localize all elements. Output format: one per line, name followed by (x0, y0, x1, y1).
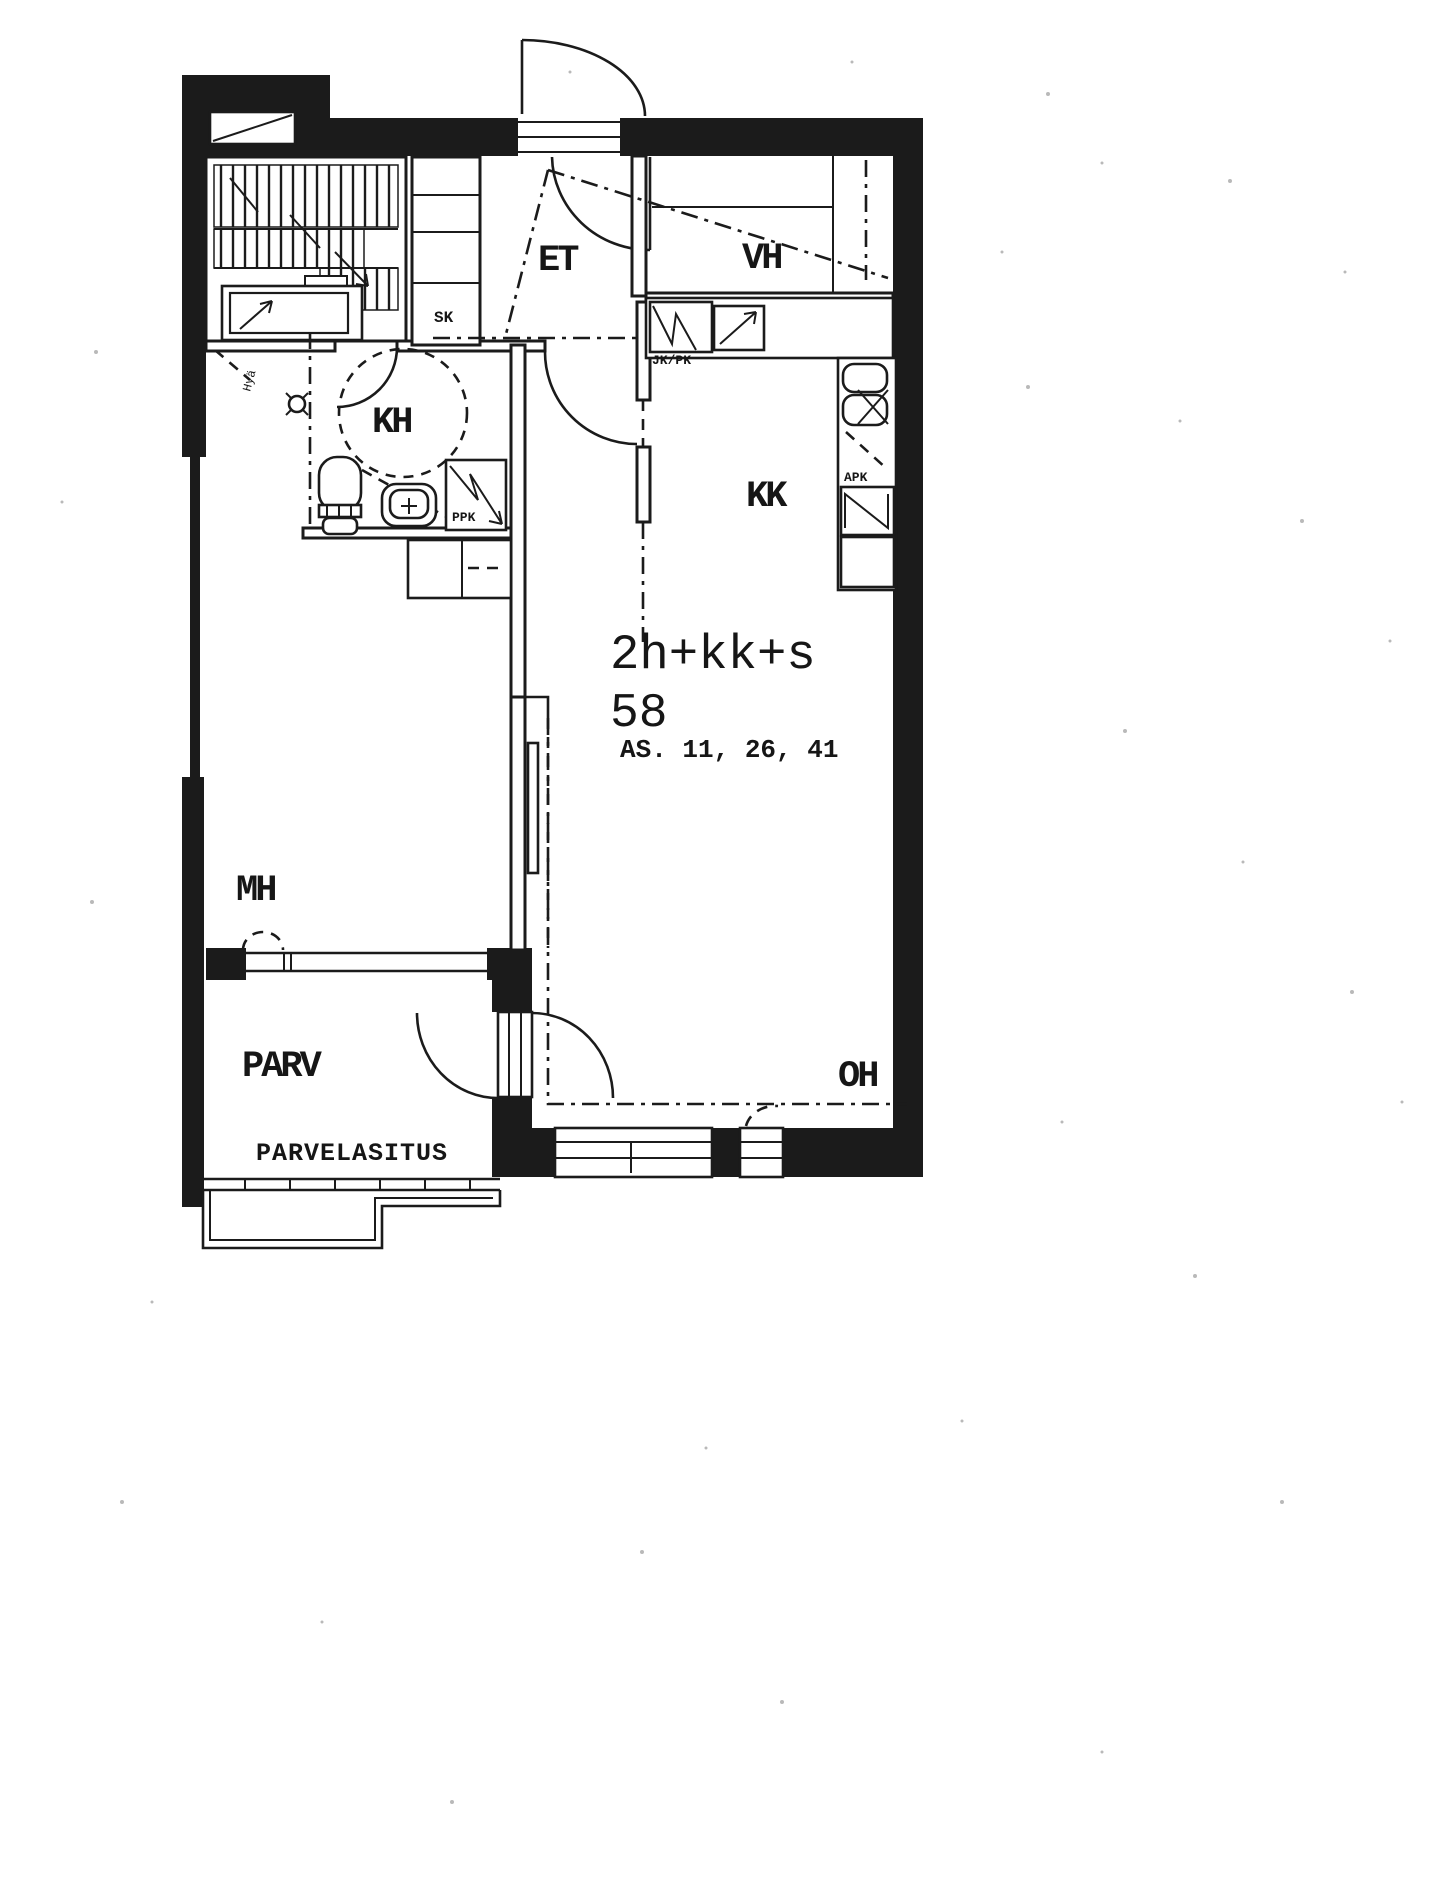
window-vent-swing (746, 1106, 778, 1126)
mh-window (246, 953, 487, 971)
apartment-numbers-label: AS. 11, 26, 41 (620, 735, 838, 765)
mh-window-swing (243, 932, 283, 950)
balcony-glazing (203, 1179, 500, 1190)
oh-window-2 (740, 1106, 783, 1177)
washbasin (382, 484, 436, 526)
labels: ET VH KH KK MH OH PARV 2h+kk+s 58 AS. 11… (236, 238, 877, 1168)
sliding-door-panel[interactable] (528, 743, 538, 873)
wall-left-middle (190, 457, 200, 777)
wall-mh-parv-left (206, 948, 246, 980)
wall-right (893, 118, 923, 1177)
room-label-kh: KH (372, 402, 411, 444)
wall-balcony-pillar (492, 950, 532, 1012)
elevator-shaft-symbol (222, 286, 362, 340)
wall-kk-left-lower (637, 447, 650, 522)
room-label-oh: OH (838, 1056, 877, 1098)
kitchen-cabinet (841, 537, 894, 587)
wall-et-vh (632, 156, 646, 296)
scanned-floor-plan-page: ET VH KH KK MH OH PARV 2h+kk+s 58 AS. 11… (0, 0, 1440, 1877)
wall-mh-oh (511, 697, 525, 950)
wall-below-balcony-door (492, 1097, 532, 1132)
washer-label: PPK (452, 510, 476, 525)
wall-oh-bottom-right (783, 1128, 893, 1177)
fridge-label: JK/PK (652, 353, 691, 368)
balcony-door-swing-right (532, 1013, 613, 1098)
door-swing-outside (522, 40, 645, 116)
fridge-box-2 (714, 306, 764, 350)
hall-door-swing (545, 352, 637, 444)
unit-type-label: 2h+kk+s (610, 627, 816, 683)
fridge-freezer (650, 302, 712, 352)
kh-door-swing (337, 347, 397, 407)
kitchen (646, 298, 896, 590)
room-label-kk: KK (746, 476, 788, 518)
stairs-lower-flight (214, 229, 364, 268)
dishwasher-label: APK (844, 470, 868, 485)
room-label-mh: MH (236, 870, 275, 912)
balcony (203, 1179, 500, 1248)
oh-windows (555, 1106, 783, 1177)
area-label: 58 (610, 687, 668, 741)
toilet (319, 457, 361, 534)
wall-kh-top-left (206, 341, 335, 351)
floor-plan-drawing: ET VH KH KK MH OH PARV 2h+kk+s 58 AS. 11… (0, 0, 1440, 1877)
oh-window-1 (555, 1128, 712, 1177)
balcony-door (417, 1012, 613, 1098)
balcony-door-swing-left (417, 1013, 498, 1098)
wall-jog (525, 697, 548, 718)
room-label-parv: PARV (242, 1046, 323, 1088)
hand-note: Hyä (240, 369, 259, 393)
wall-oh-bottom-mid (712, 1128, 740, 1177)
room-label-et: ET (538, 240, 579, 282)
wall-top-right (620, 118, 893, 156)
stairs-upper-flight (214, 165, 398, 227)
balcony-glazing-label: PARVELASITUS (256, 1139, 448, 1168)
bedroom (243, 540, 511, 971)
floor-drain (286, 393, 308, 415)
shaft-box (210, 112, 295, 144)
wall-top-left (330, 118, 518, 156)
wall-left-upper (182, 157, 206, 457)
room-label-vh: VH (742, 238, 781, 280)
stove (841, 487, 894, 535)
balcony-parapet-inner (210, 1190, 493, 1240)
wall-oh-bottom-left (492, 1128, 555, 1177)
wall-kh-mh-right (511, 345, 525, 697)
sk-closet-label: SK (434, 309, 454, 327)
wall-left-lower (182, 777, 204, 1207)
balcony-door-frame[interactable] (498, 1012, 532, 1097)
mh-wardrobes (408, 540, 511, 598)
